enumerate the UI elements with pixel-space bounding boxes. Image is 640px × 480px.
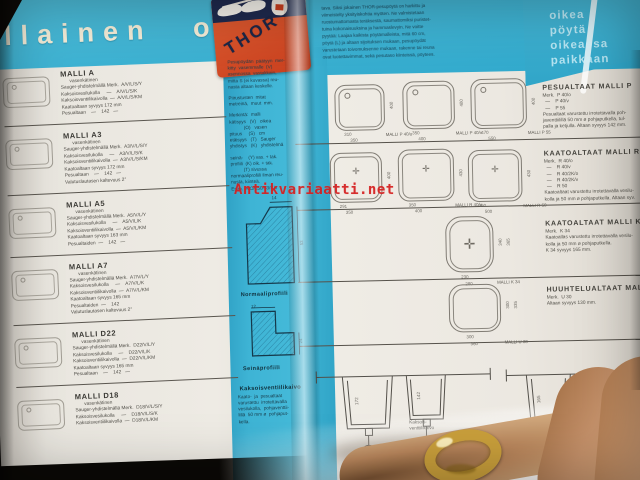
model-spec-lines: Sauger-yhdistelmällä Merk. A5/V/L/YKakso…: [67, 209, 232, 249]
model-spec-lines: Sauger-yhdistelmällä Merk. A/V/L/S/YKaks…: [61, 78, 226, 118]
section-body: Merk. U 30Altaan syvyys 130 mm.: [547, 295, 597, 309]
dim-height: 365: [505, 238, 510, 245]
dim-width: 310: [344, 132, 351, 137]
drain-cross-icon: ✛: [422, 164, 430, 175]
dim-width: 230: [461, 274, 468, 279]
sink-plan-icon: [11, 269, 59, 301]
drain-icon: [480, 87, 486, 93]
dim-depth: 165: [536, 395, 541, 403]
dim-height: 340: [497, 238, 502, 245]
dim-width: 350: [409, 202, 416, 207]
section-body: Merk. R 40/o — R 40/v — R 40/2K/o — R 40…: [544, 158, 635, 204]
dim-width: 400: [415, 208, 422, 213]
dim-height: 400: [386, 172, 391, 179]
section-body: Merk. K 34Kaatoallas varustettu irrotett…: [545, 228, 633, 255]
model-spec-lines: Sauger-yhdistelmällä Merk. A7/V/L/YKakso…: [69, 271, 235, 318]
left-edge-shadow: [0, 0, 14, 480]
dim-depth: 142: [416, 392, 421, 400]
drain-cross-icon: ✛: [352, 166, 360, 177]
dim-height: 335: [513, 301, 518, 308]
sink-label: MALLI U 30: [505, 339, 528, 344]
sink-label: MALLI R 50: [523, 203, 546, 208]
dim-width: 500: [485, 209, 492, 214]
dim-depth: 172: [354, 397, 359, 405]
dim-width: 350: [350, 138, 357, 143]
dim-width: 400: [418, 136, 425, 141]
sink-drawing: 300 360 300 335 MALLI U 30: [448, 284, 501, 333]
dim-width: 350: [346, 210, 353, 215]
section-body: Merk. P 40/o — P 40/v — P 55Pesualtaat v…: [542, 92, 626, 132]
dim-height: 430: [458, 169, 463, 176]
dim-width: 460: [479, 203, 486, 208]
drain-icon: [344, 93, 350, 99]
profile-dim: 12: [251, 304, 256, 309]
sink-drawing: ✛ 350 400 430 MALLI R 40/v: [398, 149, 455, 202]
ring-shade: [446, 464, 476, 474]
sink-label: MALLI P 40/o: [386, 131, 413, 137]
sink-drawing: ✛ 460 500 430 MALLI R 50: [468, 149, 523, 202]
model-section-d18: MALLI D18 vasenkätinen Sauger-yhdistelmä…: [16, 378, 240, 436]
model-section-a3: MALLI A3 vasenkätinen Sauger-yhdistelmäl…: [5, 117, 230, 196]
model-section-a5: MALLI A5 vasenkätinen Sauger-yhdistelmäl…: [8, 186, 233, 258]
sink-drawing: 310 350 400 MALLI P 40/o: [334, 84, 385, 131]
dim-height: 430: [526, 170, 531, 177]
model-section-a: MALLI A vasenkätinen Sauger-yhdistelmäll…: [2, 55, 227, 127]
dim-height: 400: [388, 102, 393, 109]
dim-height: 400: [530, 98, 535, 105]
model-section-a7: MALLI A7 vasenkätinen Sauger-yhdistelmäl…: [10, 248, 235, 327]
watermark-text: Antikvariaatti.net: [234, 182, 395, 198]
dim-width: 550: [488, 136, 495, 141]
dim-width: 470: [481, 130, 488, 135]
goat-icon: [217, 2, 243, 18]
dim-width: 300: [466, 334, 473, 339]
drain-cross-icon: ✛: [464, 236, 476, 253]
sink-plan-icon: [8, 207, 56, 239]
dim-height: 400: [458, 100, 463, 107]
right-edge-shadow: [630, 50, 640, 390]
intro-paragraph: tava. Siksi jokainen THOR-pesupöytä on h…: [321, 0, 524, 61]
dim-width: 291: [340, 204, 347, 209]
model-section-d22: MALLI D22 vasenkätinen Sauger-yhdistelmä…: [14, 316, 239, 388]
model-spec-list: MALLI A vasenkätinen Sauger-yhdistelmäll…: [2, 55, 247, 436]
sink-label: MALLI P 40/v: [456, 130, 482, 136]
dim-width: 360: [471, 341, 478, 346]
catalog-photo: llainen on tava. Siksi jokainen THOR-pes…: [0, 0, 640, 480]
model-spec-lines: Sauger-yhdistelmällä Merk. A3/V/L/S/YKak…: [64, 140, 230, 187]
sink-drawing: 470 550 400 MALLI P 55: [470, 78, 527, 129]
drain-icon: [412, 89, 418, 95]
sink-plan-icon: [14, 337, 62, 369]
sink-drawing: ✛ 230 280 340 365 MALLI K 34: [445, 216, 494, 273]
sink-drawing: 350 400 400 MALLI P 40/v: [402, 81, 455, 130]
dim-width: 350: [412, 130, 419, 135]
drain-cross-icon: ✛: [491, 164, 499, 175]
slogan-text: oikeapöytäoikeassapaikkaan: [549, 7, 610, 69]
sink-plan-icon: [17, 399, 65, 431]
model-spec-lines: Sauger-yhdistelmällä Merk. D22/V/L/YKaks…: [73, 339, 238, 379]
dim-height: 300: [505, 302, 510, 309]
sink-label: MALLI K 34: [497, 279, 520, 284]
